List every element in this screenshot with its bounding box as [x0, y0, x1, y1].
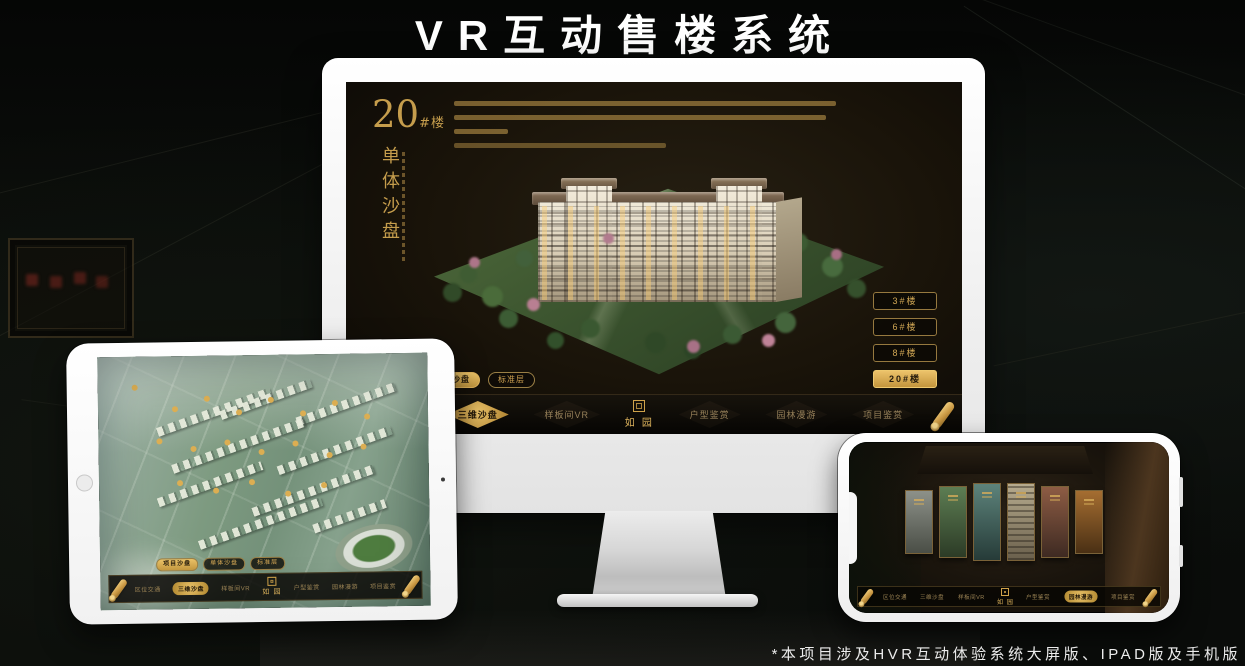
bg-plaque-frame: [17, 247, 125, 329]
nav-item-3d-sandtable[interactable]: 三维沙盘: [173, 581, 209, 595]
tab-standard-floor[interactable]: 标准层: [250, 557, 285, 570]
scene-gallery: [903, 480, 1105, 564]
scroll-handle-icon[interactable]: [931, 400, 956, 430]
nav-item-showroom-vr[interactable]: 样板间VR: [221, 583, 250, 592]
scroll-end-icon: [860, 588, 875, 605]
section-subtitle-vertical: 单体沙盘: [376, 146, 402, 276]
scroll-end-icon: [1144, 588, 1159, 605]
nav-item-project-gallery[interactable]: 项目鉴赏: [1111, 592, 1135, 600]
footnote-caption: *本项目涉及HVR互动体验系统大屏版、IPAD版及手机版: [772, 643, 1241, 664]
monitor-stand: [592, 511, 726, 599]
ipad-view-tabs: 项目沙盘 单体沙盘 标准层: [156, 557, 285, 572]
nav-item-3d-sandtable[interactable]: 三维沙盘: [920, 592, 944, 600]
nav-item-showroom-vr[interactable]: 样板间VR: [534, 401, 601, 428]
subtitle-english-decor: [402, 152, 405, 264]
phone-device: 区位交通 三维沙盘 样板间VR 如 园 户型鉴赏 园林漫游 项目鉴赏: [838, 433, 1180, 622]
nav-item-garden-roam[interactable]: 园林漫游: [1064, 591, 1097, 603]
bg-plaque-photo: [8, 238, 134, 338]
brand-logo: 如 园: [625, 400, 654, 429]
gallery-panel-courtyard[interactable]: [905, 490, 933, 554]
monitor-base: [557, 594, 758, 607]
scroll-end-icon: [403, 574, 421, 596]
page-title: VR互动售楼系统: [0, 2, 1245, 63]
floor-button-8[interactable]: 8#楼: [873, 344, 937, 362]
bg-map-road: [994, 295, 1245, 367]
nav-item-showroom-vr[interactable]: 样板间VR: [958, 592, 985, 600]
gallery-panel-aerial[interactable]: [973, 483, 1001, 561]
interior-roof-beam: [917, 446, 1093, 474]
logo-seal-icon: [633, 400, 645, 412]
tab-single-sandtable[interactable]: 单体沙盘: [203, 557, 245, 571]
nav-item-floorplans[interactable]: 户型鉴赏: [1026, 592, 1050, 600]
floor-button-3[interactable]: 3#楼: [873, 292, 937, 310]
gallery-panel-building[interactable]: [1007, 483, 1035, 561]
scroll-end-icon: [110, 578, 128, 600]
nav-item-project-gallery[interactable]: 项目鉴赏: [852, 401, 914, 428]
nav-item-location[interactable]: 区位交通: [883, 592, 907, 600]
ipad-home-button[interactable]: [76, 474, 93, 491]
promo-canvas: VR互动售楼系统 20#楼 单体沙盘: [0, 0, 1245, 666]
gallery-panel-autumn[interactable]: [1041, 486, 1069, 558]
nav-item-3d-sandtable[interactable]: 三维沙盘: [447, 401, 509, 428]
phone-screen: 区位交通 三维沙盘 样板间VR 如 园 户型鉴赏 园林漫游 项目鉴赏: [849, 442, 1169, 613]
nav-item-location[interactable]: 区位交通: [135, 584, 161, 593]
ipad-screen: 项目沙盘 单体沙盘 标准层 区位交通 三维沙盘 样板间VR 如 园 户型鉴赏 园…: [97, 353, 431, 611]
nav-item-project-gallery[interactable]: 项目鉴赏: [370, 581, 396, 590]
gallery-panel-garden[interactable]: [939, 486, 967, 558]
floor-button-20-active[interactable]: 20#楼: [873, 370, 937, 388]
ipad-device: 项目沙盘 单体沙盘 标准层 区位交通 三维沙盘 样板间VR 如 园 户型鉴赏 园…: [66, 338, 458, 624]
phone-notch: [849, 492, 857, 564]
floor-button-6[interactable]: 6#楼: [873, 318, 937, 336]
building-number-suffix: #楼: [419, 116, 445, 131]
nav-item-floorplans[interactable]: 户型鉴赏: [294, 582, 320, 591]
tab-standard-floor[interactable]: 标准层: [488, 372, 535, 388]
brand-logo: 如 园: [262, 577, 282, 597]
logo-seal-icon: [267, 577, 276, 586]
building-3d-model: [434, 140, 884, 384]
tab-project-sandtable[interactable]: 项目沙盘: [156, 558, 198, 572]
building-side-face: [776, 197, 802, 302]
gallery-panel-interior[interactable]: [1075, 490, 1103, 554]
bg-plaque-calligraphy: [26, 274, 38, 286]
logo-seal-icon: [1001, 588, 1009, 596]
building-lit-windows: [538, 206, 776, 300]
nav-item-floorplans[interactable]: 户型鉴赏: [679, 401, 741, 428]
building-number-heading: 20#楼: [372, 96, 445, 133]
ipad-navigation-bar: 区位交通 三维沙盘 样板间VR 如 园 户型鉴赏 园林漫游 项目鉴赏: [108, 571, 422, 603]
phone-volume-button: [1179, 545, 1183, 567]
phone-navigation-bar: 区位交通 三维沙盘 样板间VR 如 园 户型鉴赏 园林漫游 项目鉴赏: [857, 586, 1161, 607]
ipad-camera-icon: [441, 477, 445, 481]
phone-power-button: [1179, 477, 1183, 507]
model-flower-shrubs: [434, 140, 443, 149]
nav-item-garden-roam[interactable]: 园林漫游: [332, 581, 358, 590]
floor-selector: 3#楼 6#楼 8#楼 20#楼: [873, 292, 937, 396]
brand-logo: 如 园: [997, 588, 1014, 606]
nav-item-garden-roam[interactable]: 园林漫游: [765, 401, 827, 428]
